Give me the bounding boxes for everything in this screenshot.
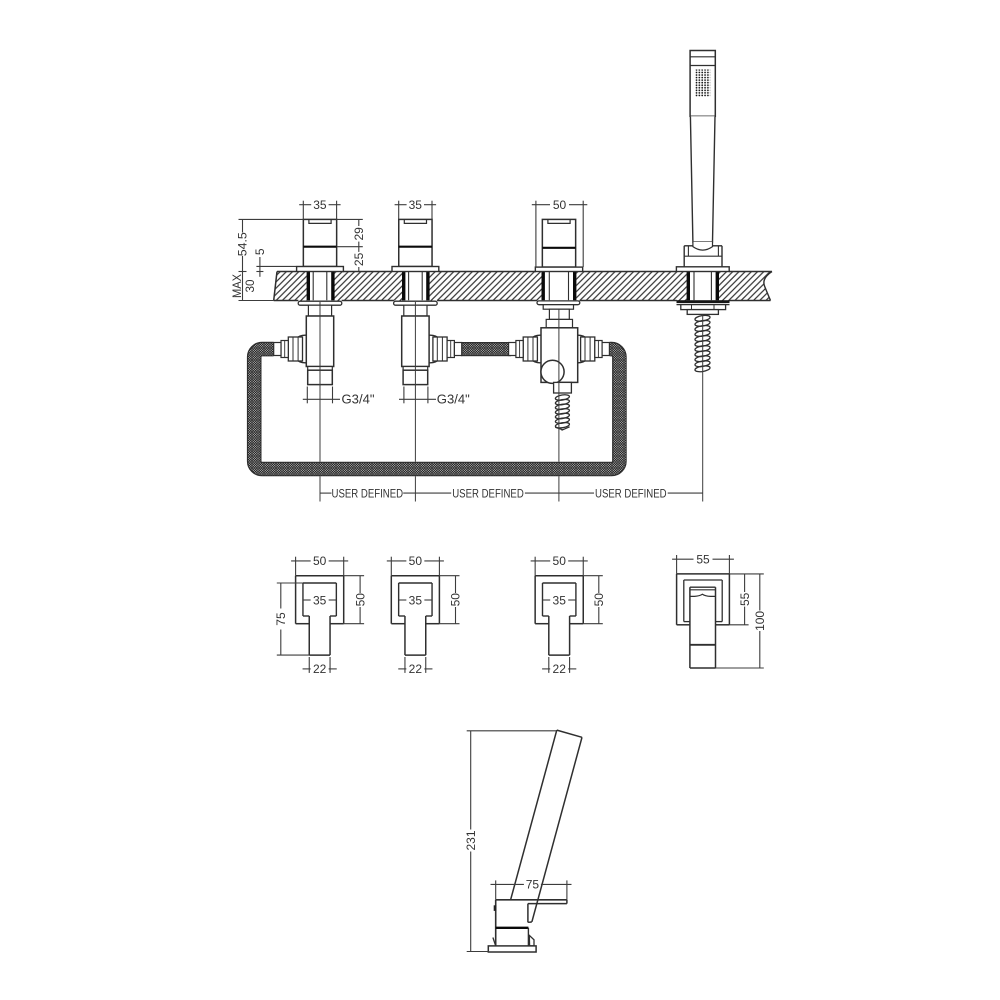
svg-text:231: 231 bbox=[464, 830, 478, 850]
svg-text:50: 50 bbox=[592, 593, 606, 607]
svg-text:G3/4": G3/4" bbox=[437, 392, 470, 406]
svg-text:35: 35 bbox=[553, 593, 567, 607]
svg-text:25: 25 bbox=[352, 252, 366, 266]
svg-text:50: 50 bbox=[553, 198, 567, 212]
svg-text:G3/4": G3/4" bbox=[342, 392, 375, 406]
svg-text:54.5: 54.5 bbox=[236, 232, 250, 256]
svg-text:30: 30 bbox=[243, 279, 257, 292]
svg-text:USER DEFINED: USER DEFINED bbox=[332, 486, 404, 500]
svg-text:100: 100 bbox=[753, 611, 767, 631]
svg-text:22: 22 bbox=[313, 662, 327, 676]
svg-text:35: 35 bbox=[313, 593, 327, 607]
svg-text:50: 50 bbox=[353, 593, 367, 607]
svg-text:35: 35 bbox=[313, 198, 327, 212]
svg-text:50: 50 bbox=[553, 554, 567, 568]
svg-text:50: 50 bbox=[449, 593, 463, 607]
svg-text:75: 75 bbox=[274, 612, 288, 626]
svg-text:75: 75 bbox=[526, 878, 540, 892]
svg-text:35: 35 bbox=[409, 198, 423, 212]
svg-text:35: 35 bbox=[409, 593, 423, 607]
svg-text:55: 55 bbox=[696, 552, 710, 566]
svg-text:50: 50 bbox=[409, 554, 423, 568]
svg-text:USER DEFINED: USER DEFINED bbox=[452, 486, 524, 500]
svg-text:USER DEFINED: USER DEFINED bbox=[595, 486, 667, 500]
svg-text:50: 50 bbox=[313, 554, 327, 568]
svg-text:MAX: MAX bbox=[230, 274, 244, 298]
svg-text:29: 29 bbox=[352, 227, 366, 241]
svg-text:5: 5 bbox=[253, 248, 267, 255]
svg-text:22: 22 bbox=[553, 662, 567, 676]
svg-text:22: 22 bbox=[409, 662, 423, 676]
svg-text:55: 55 bbox=[738, 592, 752, 606]
